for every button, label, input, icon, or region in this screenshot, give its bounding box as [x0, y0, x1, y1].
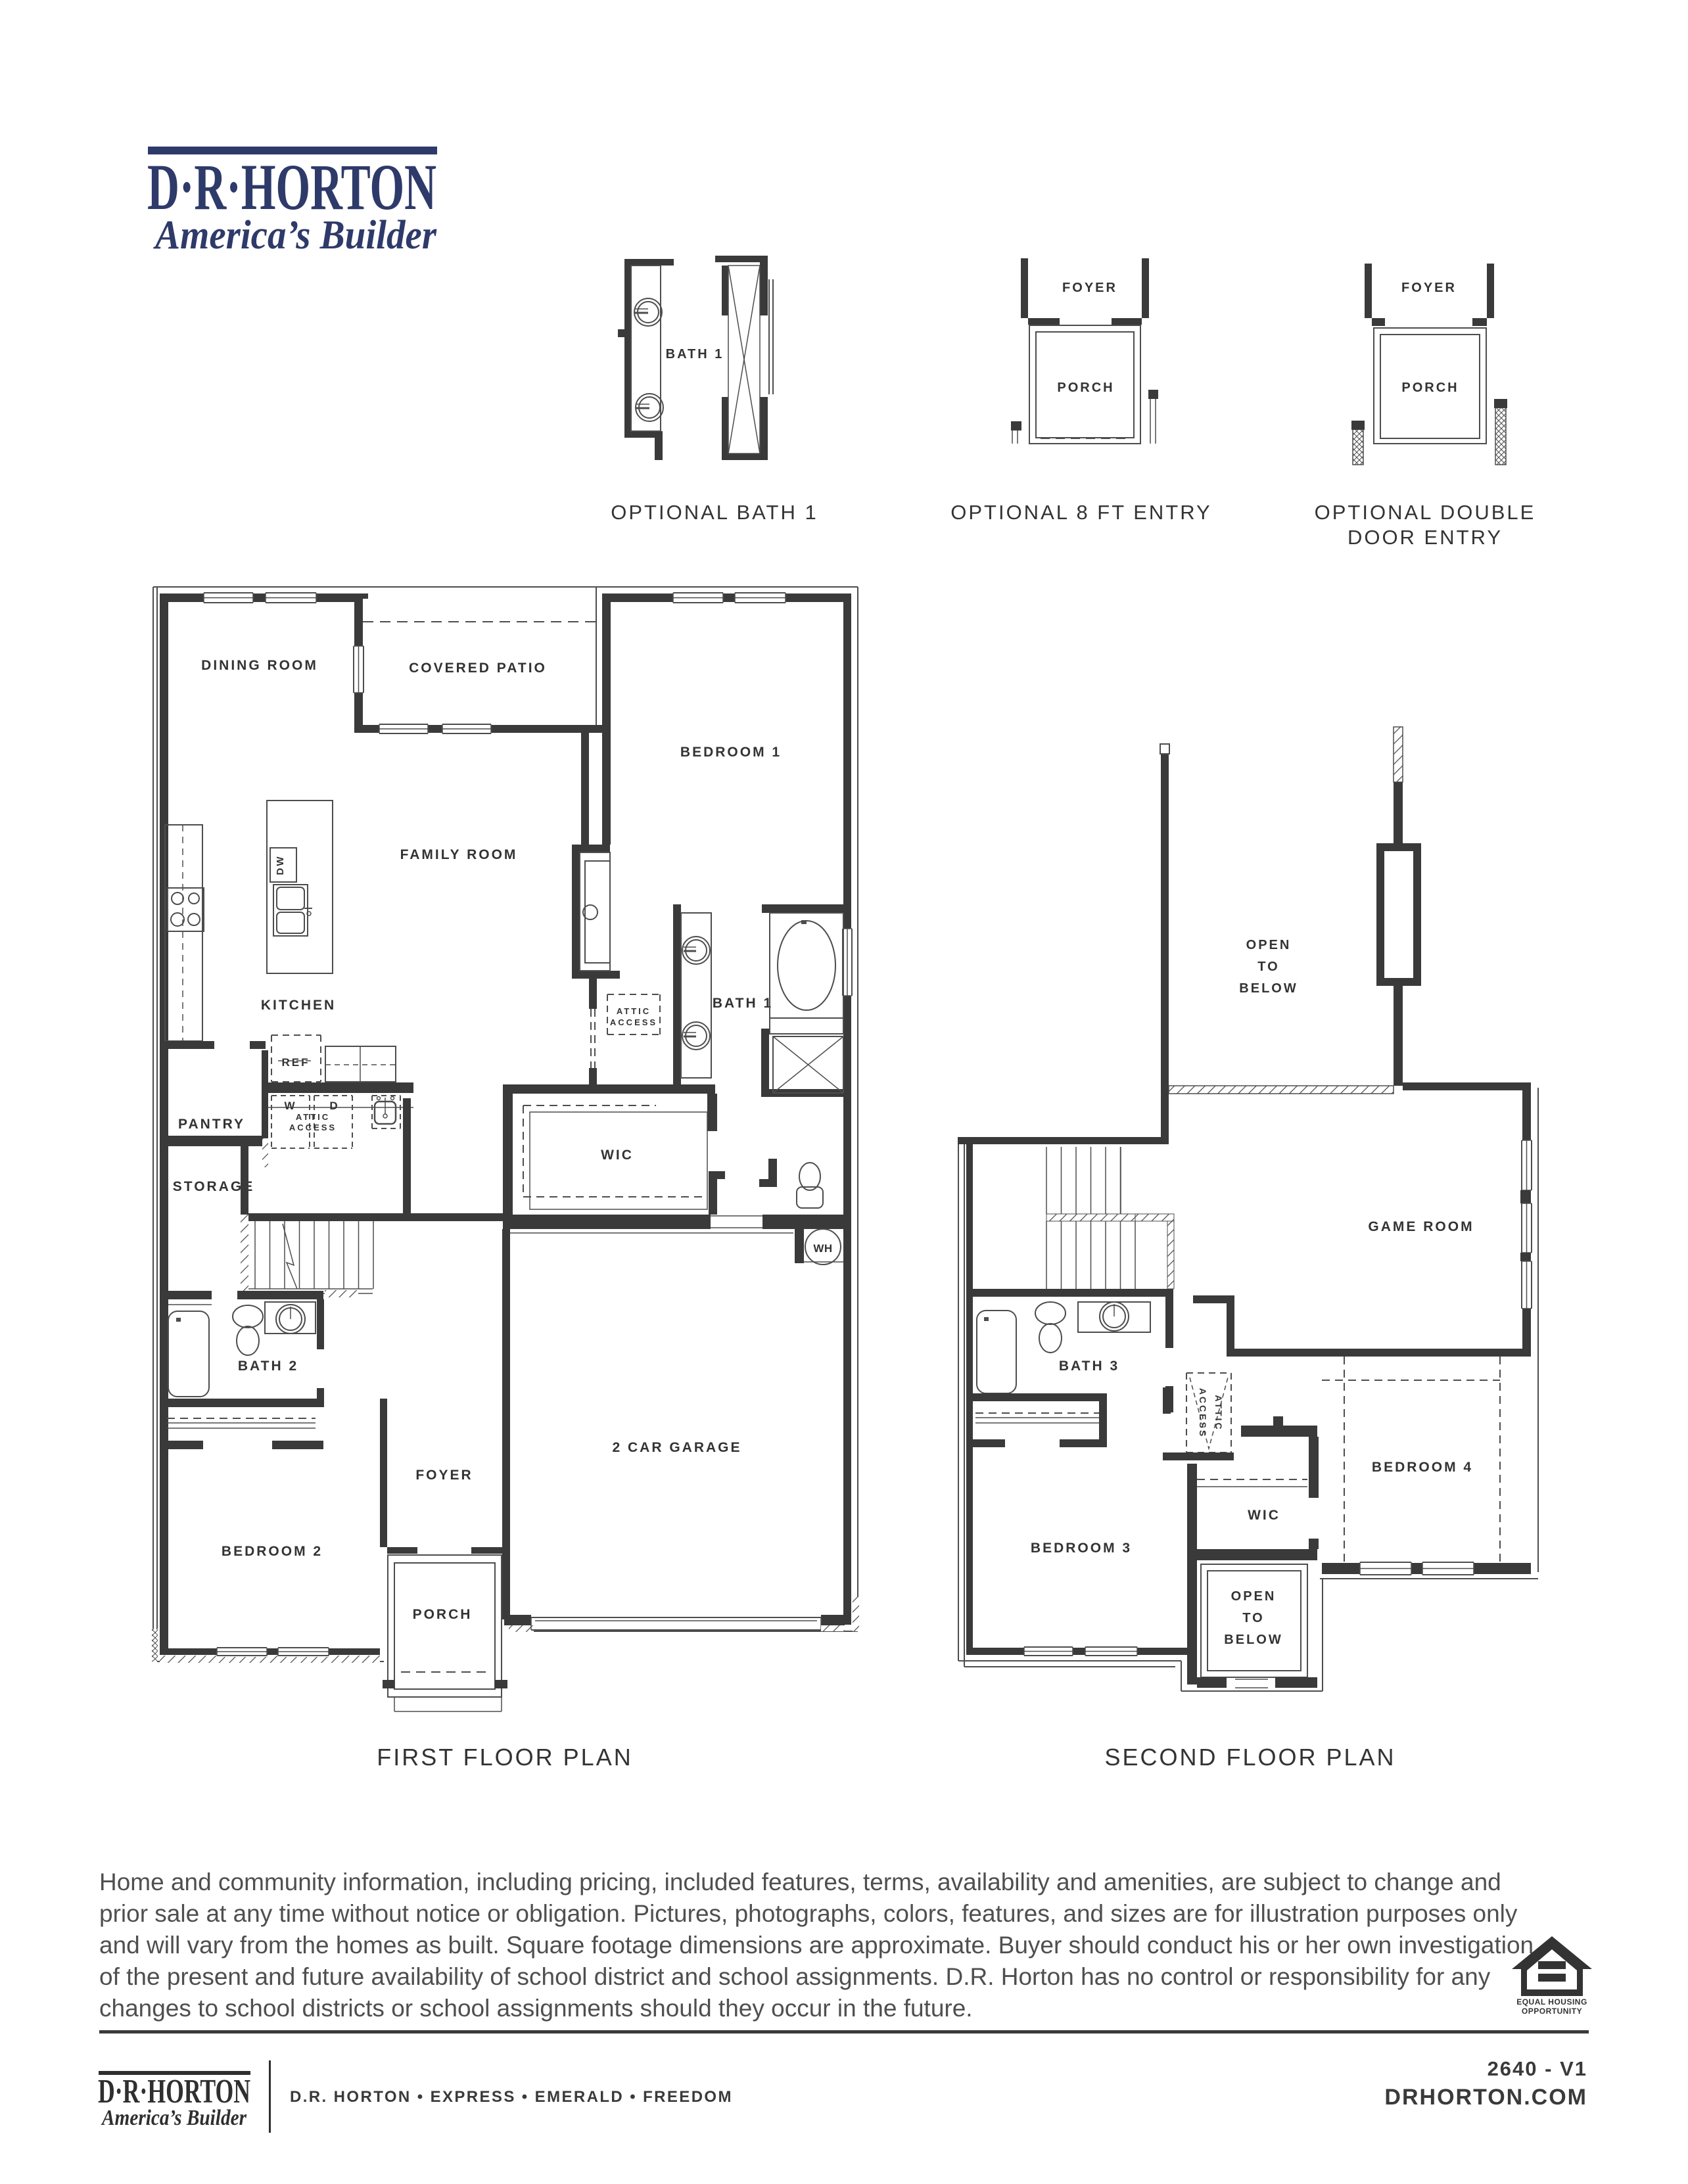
svg-text:PORCH: PORCH	[1057, 381, 1114, 395]
svg-text:PORCH: PORCH	[1401, 381, 1459, 395]
svg-text:D.R. HORTON • EXPRESS • EMERAL: D.R. HORTON • EXPRESS • EMERALD • FREEDO…	[290, 2088, 733, 2106]
svg-text:FIRST FLOOR PLAN: FIRST FLOOR PLAN	[377, 1744, 632, 1771]
svg-text:PORCH: PORCH	[413, 1607, 473, 1622]
svg-text:REF: REF	[282, 1056, 310, 1069]
svg-text:ACCESS: ACCESS	[610, 1017, 657, 1027]
svg-text:OPEN: OPEN	[1246, 938, 1292, 952]
svg-text:prior sale at any time without: prior sale at any time without notice or…	[99, 1900, 1518, 1927]
svg-text:of the present and future avai: of the present and future availability o…	[99, 1963, 1491, 1990]
svg-text:EQUAL HOUSING: EQUAL HOUSING	[1516, 1997, 1587, 2007]
svg-text:OPTIONAL 8 FT ENTRY: OPTIONAL 8 FT ENTRY	[950, 501, 1212, 524]
svg-text:ATTIC: ATTIC	[296, 1112, 330, 1122]
svg-text:and will vary from the homes a: and will vary from the homes as built. S…	[99, 1932, 1534, 1959]
svg-text:BEDROOM 1: BEDROOM 1	[680, 745, 782, 760]
svg-text:DINING ROOM: DINING ROOM	[201, 658, 318, 673]
svg-text:W: W	[284, 1100, 296, 1112]
svg-text:KITCHEN: KITCHEN	[261, 998, 336, 1013]
svg-text:BATH 1: BATH 1	[666, 347, 724, 361]
svg-text:WIC: WIC	[601, 1148, 634, 1163]
svg-text:ATTIC: ATTIC	[617, 1006, 651, 1016]
svg-text:D·R·HORTON: D·R·HORTON	[98, 2073, 250, 2110]
svg-text:FOYER: FOYER	[1062, 281, 1117, 295]
svg-text:FOYER: FOYER	[1401, 281, 1457, 295]
svg-text:BEDROOM 3: BEDROOM 3	[1031, 1541, 1132, 1556]
svg-text:BATH 3: BATH 3	[1059, 1359, 1119, 1374]
svg-text:COVERED PATIO: COVERED PATIO	[409, 661, 547, 676]
svg-text:2640 - V1: 2640 - V1	[1488, 2057, 1587, 2080]
svg-text:OPEN: OPEN	[1231, 1589, 1277, 1604]
svg-text:WH: WH	[813, 1242, 832, 1255]
svg-text:OPTIONAL DOUBLE: OPTIONAL DOUBLE	[1315, 501, 1536, 524]
svg-text:America’s Builder: America’s Builder	[152, 213, 436, 258]
svg-text:changes to school districts or: changes to school districts or school as…	[99, 1995, 973, 2022]
svg-text:BATH 1: BATH 1	[713, 996, 773, 1011]
svg-text:ACCESS: ACCESS	[1198, 1388, 1208, 1438]
svg-text:BEDROOM 2: BEDROOM 2	[222, 1544, 323, 1559]
svg-text:OPTIONAL BATH 1: OPTIONAL BATH 1	[611, 501, 818, 524]
svg-text:D: D	[329, 1100, 339, 1112]
svg-text:PANTRY: PANTRY	[178, 1117, 245, 1132]
svg-text:2 CAR GARAGE: 2 CAR GARAGE	[612, 1440, 741, 1455]
svg-text:ATTIC: ATTIC	[1213, 1395, 1224, 1431]
svg-text:TO: TO	[1257, 960, 1279, 974]
svg-text:FAMILY ROOM: FAMILY ROOM	[400, 847, 518, 862]
svg-text:BELOW: BELOW	[1224, 1633, 1282, 1647]
svg-text:GAME ROOM: GAME ROOM	[1368, 1219, 1474, 1234]
svg-text:BELOW: BELOW	[1239, 981, 1298, 996]
svg-text:America’s Builder: America’s Builder	[101, 2106, 246, 2130]
svg-text:TO: TO	[1242, 1611, 1264, 1625]
svg-text:FOYER: FOYER	[415, 1468, 473, 1483]
svg-text:DRHORTON.COM: DRHORTON.COM	[1384, 2085, 1587, 2110]
svg-text:SECOND FLOOR PLAN: SECOND FLOOR PLAN	[1104, 1744, 1395, 1771]
svg-text:DOOR ENTRY: DOOR ENTRY	[1348, 526, 1503, 549]
svg-text:ACCESS: ACCESS	[289, 1123, 337, 1132]
svg-text:BATH 2: BATH 2	[238, 1359, 298, 1374]
svg-text:OPPORTUNITY: OPPORTUNITY	[1522, 2007, 1582, 2016]
svg-text:BEDROOM 4: BEDROOM 4	[1372, 1460, 1473, 1475]
svg-text:Home and community information: Home and community information, includin…	[99, 1869, 1501, 1895]
svg-text:WIC: WIC	[1248, 1508, 1280, 1523]
svg-text:DW: DW	[275, 855, 286, 875]
